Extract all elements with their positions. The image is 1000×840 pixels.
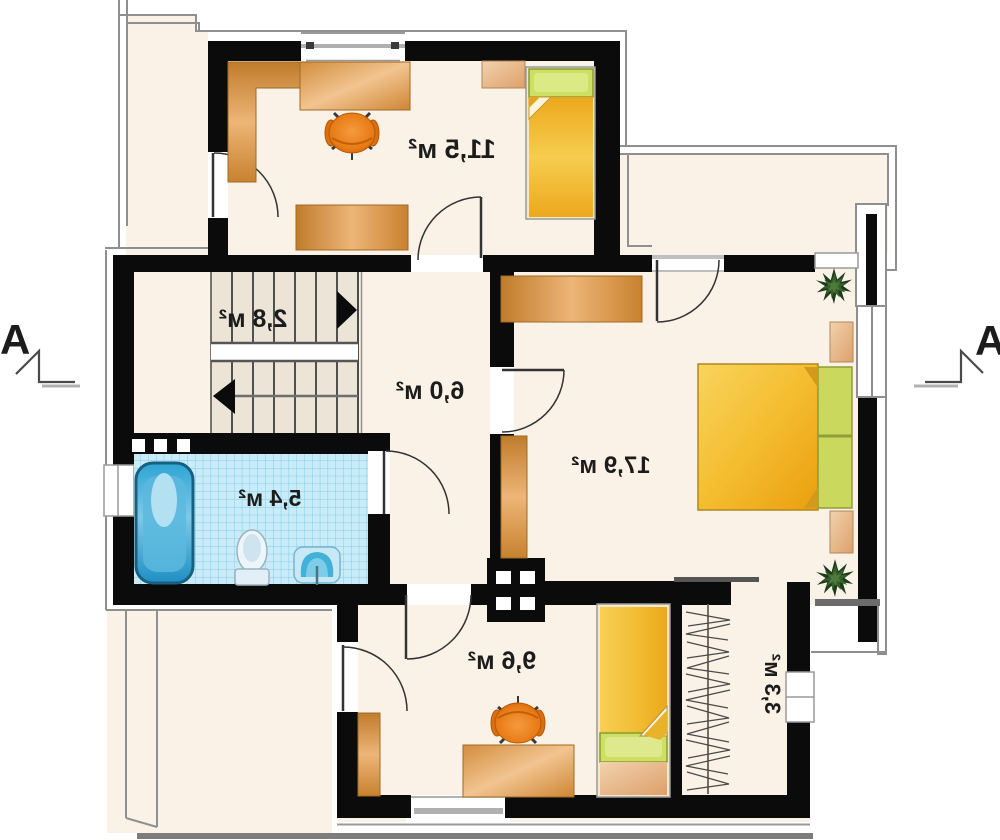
svg-text:A: A xyxy=(0,316,30,363)
svg-text:2,8 м²: 2,8 м² xyxy=(219,305,288,333)
svg-text:17,9 м²: 17,9 м² xyxy=(571,452,650,479)
svg-text:11,5 м²: 11,5 м² xyxy=(408,134,496,164)
svg-text:5,4 м²: 5,4 м² xyxy=(238,485,301,511)
svg-text:9,6 м²: 9,6 м² xyxy=(468,647,537,675)
svg-text:3,3 м²: 3,3 м² xyxy=(760,654,785,714)
svg-text:A: A xyxy=(975,317,1000,364)
svg-text:6,0 м²: 6,0 м² xyxy=(396,377,465,405)
